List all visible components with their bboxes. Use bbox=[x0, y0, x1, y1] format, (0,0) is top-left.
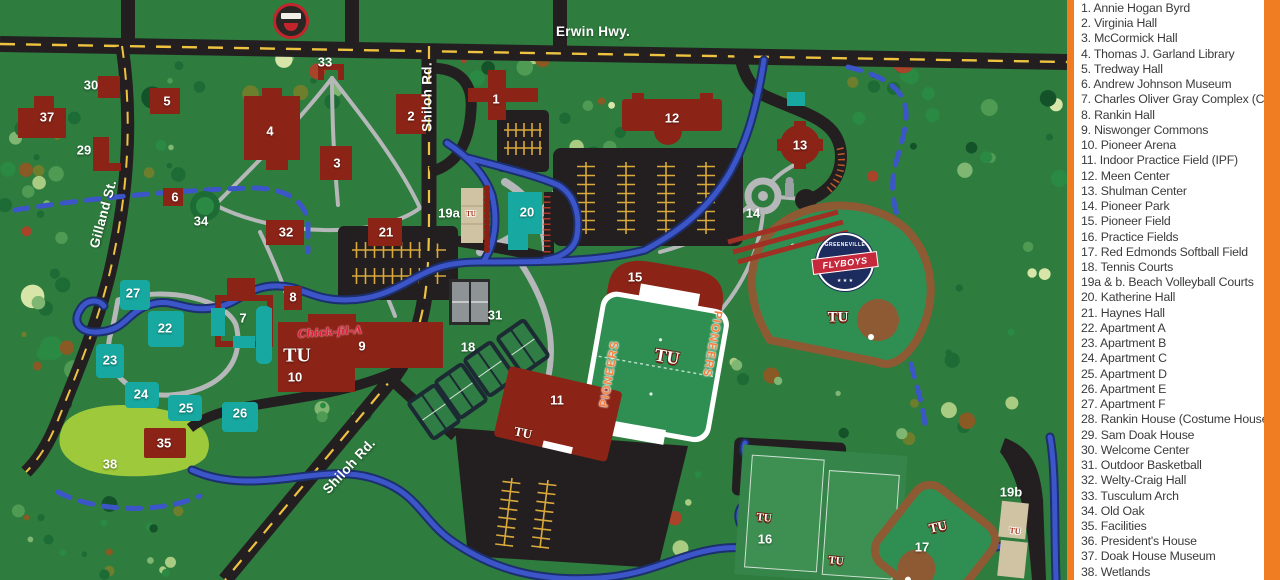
map-marker-label: 29 bbox=[77, 143, 91, 158]
creamery-label-strip bbox=[281, 13, 301, 19]
legend-item: 35. Facilities bbox=[1081, 519, 1262, 534]
legend-item: 9. Niswonger Commons bbox=[1081, 123, 1262, 138]
legend-item: 34. Old Oak bbox=[1081, 504, 1262, 519]
road-label-erwin-hwy: Erwin Hwy. bbox=[556, 24, 630, 39]
legend-item: 21. Haynes Hall bbox=[1081, 306, 1262, 321]
map-marker-label: 20 bbox=[520, 205, 534, 220]
map-marker-label: 5 bbox=[163, 94, 170, 109]
legend-item: 6. Andrew Johnson Museum bbox=[1081, 77, 1262, 92]
map-marker-label: 35 bbox=[157, 436, 171, 451]
map-marker-label: 32 bbox=[279, 225, 293, 240]
map-marker-label: 27 bbox=[126, 286, 140, 301]
legend-item: 23. Apartment B bbox=[1081, 336, 1262, 351]
legend-item: 7. Charles Oliver Gray Complex (COG) bbox=[1081, 92, 1262, 107]
map-marker-label: 23 bbox=[103, 353, 117, 368]
legend-panel: 1. Annie Hogan Byrd2. Virginia Hall3. Mc… bbox=[1074, 0, 1264, 580]
legend-item: 33. Tusculum Arch bbox=[1081, 489, 1262, 504]
legend-item: 2. Virginia Hall bbox=[1081, 16, 1262, 31]
map-marker-label: 11 bbox=[550, 393, 564, 408]
map-marker-label: 19a bbox=[438, 206, 460, 221]
map-marker-label: 21 bbox=[379, 225, 393, 240]
map-artwork bbox=[0, 0, 1067, 580]
legend-item: 31. Outdoor Basketball bbox=[1081, 458, 1262, 473]
legend-item: 13. Shulman Center bbox=[1081, 184, 1262, 199]
tu-logo: TU bbox=[1009, 526, 1021, 536]
legend-item: 32. Welty-Craig Hall bbox=[1081, 473, 1262, 488]
legend-left-accent-stripe bbox=[1067, 0, 1074, 580]
campus-map-page: Erwin Hwy. Shiloh Rd. Gilland St. Shiloh… bbox=[0, 0, 1280, 580]
road-label-shiloh-rd-north: Shiloh Rd. bbox=[420, 62, 435, 132]
legend-item: 19a & b. Beach Volleyball Courts bbox=[1081, 275, 1262, 290]
map-marker-label: 15 bbox=[628, 270, 642, 285]
map-marker-label: 7 bbox=[239, 311, 246, 326]
legend-item: 26. Apartment E bbox=[1081, 382, 1262, 397]
map-marker-label: 38 bbox=[103, 457, 117, 472]
map-marker-label: 1 bbox=[492, 92, 499, 107]
legend-item: 17. Red Edmonds Softball Field bbox=[1081, 245, 1262, 260]
tu-logo: TU bbox=[653, 344, 681, 369]
legend-item: 14. Pioneer Park bbox=[1081, 199, 1262, 214]
map-marker-label: 37 bbox=[40, 110, 54, 125]
map-marker-label: 13 bbox=[793, 138, 807, 153]
legend-item: 27. Apartment F bbox=[1081, 397, 1262, 412]
legend-item: 24. Apartment C bbox=[1081, 351, 1262, 366]
flyboys-banner: FLYBOYS bbox=[811, 251, 878, 275]
map-canvas: Erwin Hwy. Shiloh Rd. Gilland St. Shiloh… bbox=[0, 0, 1067, 580]
tu-logo: TU bbox=[828, 310, 849, 327]
map-marker-label: 16 bbox=[758, 532, 772, 547]
creamery-cup-icon bbox=[284, 23, 298, 31]
legend-item: 28. Rankin House (Costume House) bbox=[1081, 412, 1262, 427]
map-marker-label: 18 bbox=[461, 340, 475, 355]
map-marker-label: 25 bbox=[179, 401, 193, 416]
map-marker-label: 14 bbox=[746, 206, 760, 221]
map-marker-label: 19b bbox=[1000, 485, 1022, 500]
legend-list: 1. Annie Hogan Byrd2. Virginia Hall3. Mc… bbox=[1074, 0, 1264, 580]
map-marker-label: 26 bbox=[233, 406, 247, 421]
legend-item: 4. Thomas J. Garland Library bbox=[1081, 47, 1262, 62]
tu-logo: TU bbox=[283, 345, 311, 368]
legend-item: 15. Pioneer Field bbox=[1081, 214, 1262, 229]
legend-item: 1. Annie Hogan Byrd bbox=[1081, 1, 1262, 16]
map-marker-label: 22 bbox=[158, 321, 172, 336]
legend-item: 12. Meen Center bbox=[1081, 169, 1262, 184]
legend-item: 8. Rankin Hall bbox=[1081, 108, 1262, 123]
map-marker-label: 34 bbox=[194, 214, 208, 229]
tu-logo: TU bbox=[513, 423, 534, 442]
legend-right-accent-stripe bbox=[1264, 0, 1280, 580]
legend-item: 22. Apartment A bbox=[1081, 321, 1262, 336]
map-marker-label: 8 bbox=[289, 290, 296, 305]
legend-item: 5. Tredway Hall bbox=[1081, 62, 1262, 77]
legend-item: 3. McCormick Hall bbox=[1081, 31, 1262, 46]
flyboys-baseball-logo: GREENEVILLE FLYBOYS ★ ★ ★ bbox=[816, 233, 874, 291]
legend-item: 16. Practice Fields bbox=[1081, 230, 1262, 245]
map-marker-label: 12 bbox=[665, 111, 679, 126]
map-marker-label: 30 bbox=[84, 78, 98, 93]
map-marker-label: 2 bbox=[407, 109, 414, 124]
tu-logo: TU bbox=[828, 554, 844, 568]
flyboys-city-text: GREENEVILLE bbox=[818, 242, 872, 248]
legend-item: 11. Indoor Practice Field (IPF) bbox=[1081, 153, 1262, 168]
map-marker-label: 10 bbox=[288, 370, 302, 385]
tu-logo: TU bbox=[756, 511, 772, 525]
legend-item: 29. Sam Doak House bbox=[1081, 428, 1262, 443]
map-marker-label: 4 bbox=[266, 124, 273, 139]
legend-item: 38. Wetlands bbox=[1081, 565, 1262, 580]
flyboys-stars: ★ ★ ★ bbox=[818, 278, 872, 284]
map-marker-label: 17 bbox=[915, 540, 929, 555]
legend-item: 30. Welcome Center bbox=[1081, 443, 1262, 458]
basketball-courts bbox=[449, 279, 490, 325]
map-marker-label: 6 bbox=[171, 190, 178, 205]
tu-logo: TU bbox=[466, 210, 476, 218]
map-marker-label: 33 bbox=[318, 55, 332, 70]
map-marker-label: 3 bbox=[333, 156, 340, 171]
legend-item: 37. Doak House Museum bbox=[1081, 549, 1262, 564]
legend-item: 20. Katherine Hall bbox=[1081, 290, 1262, 305]
legend-item: 18. Tennis Courts bbox=[1081, 260, 1262, 275]
map-marker-label: 31 bbox=[488, 308, 502, 323]
map-marker-label: 9 bbox=[358, 339, 365, 354]
map-marker-label: 24 bbox=[134, 387, 148, 402]
legend-item: 36. President's House bbox=[1081, 534, 1262, 549]
legend-item: 10. Pioneer Arena bbox=[1081, 138, 1262, 153]
creamery-cup-logo bbox=[273, 3, 309, 39]
legend-item: 25. Apartment D bbox=[1081, 367, 1262, 382]
